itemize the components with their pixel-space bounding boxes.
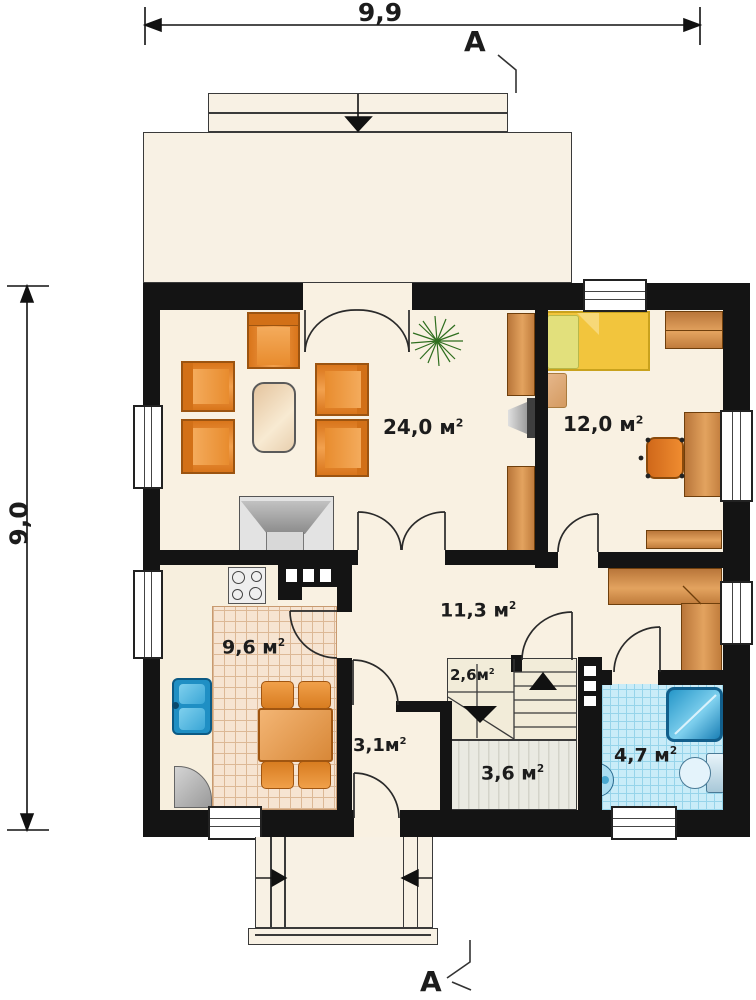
wall (723, 502, 750, 581)
room-label-bathroom: 4,7 м2 (614, 746, 677, 765)
window (133, 405, 163, 489)
wall (143, 489, 160, 570)
dimension-height-label: 9,0 (7, 489, 32, 559)
terrace-door-opening (303, 283, 412, 310)
wall (598, 552, 723, 568)
desk-chair (646, 437, 684, 479)
wall (535, 552, 558, 568)
hall-wardrobe (681, 603, 722, 672)
wall (658, 670, 723, 685)
wall (143, 283, 160, 405)
room-label-pantry: 2,6м2 (450, 667, 495, 683)
section-line-bottom (447, 940, 471, 990)
low-shelf (646, 530, 722, 549)
room-label-hall: 11,3 м2 (440, 601, 516, 620)
stove-icon (228, 567, 266, 604)
wall (723, 283, 750, 410)
hall-wardrobe (608, 568, 722, 605)
pillow (547, 315, 579, 369)
bed (543, 311, 650, 371)
terrace (143, 132, 572, 283)
window (611, 806, 677, 840)
wall (440, 701, 452, 810)
fireplace-icon (239, 496, 334, 554)
dining-chair (261, 761, 294, 789)
entrance-door-opening (354, 810, 400, 837)
wall (677, 810, 750, 837)
section-line-top (498, 55, 516, 93)
window (720, 410, 753, 502)
dimension-width-label: 9,9 (340, 0, 420, 25)
dining-table (258, 708, 333, 762)
wall (143, 810, 208, 837)
window (133, 570, 163, 659)
armchair (181, 361, 235, 412)
dining-chair (298, 681, 331, 709)
wall (337, 658, 352, 810)
terrace-steps (208, 93, 508, 132)
closet-symbol (278, 587, 302, 600)
armchair (315, 419, 369, 477)
porch (255, 837, 433, 928)
toilet-bowl (679, 757, 711, 789)
dimension-top (145, 7, 700, 45)
window (720, 581, 753, 645)
wall (262, 810, 354, 837)
wall (143, 283, 303, 310)
floor-plan: 9,9 9,0 A A 24,0 м2 12,0 м2 11,3 м2 9,6 … (0, 0, 756, 1000)
room-label-bedroom: 12,0 м2 (563, 414, 643, 434)
wall-unit-shelf (507, 313, 535, 396)
coffee-table (252, 382, 296, 453)
wall (412, 283, 585, 310)
porch-step (248, 928, 438, 945)
room-label-living: 24,0 м2 (383, 417, 463, 437)
wall (445, 550, 548, 565)
wall (723, 645, 750, 837)
room-label-vestibule: 3,6 м2 (481, 764, 544, 783)
wall (511, 655, 522, 672)
tv-icon (527, 398, 535, 438)
room-label-kitchen: 9,6 м2 (222, 638, 285, 657)
armchair (315, 363, 369, 416)
shower-icon (666, 687, 723, 742)
wardrobe (665, 311, 723, 349)
wall (535, 310, 548, 552)
dining-chair (261, 681, 294, 709)
room-label-corridor: 3,1м2 (353, 737, 406, 755)
desk (684, 412, 723, 497)
window (208, 806, 262, 840)
section-marker-top: A (464, 28, 486, 56)
armchair (181, 419, 235, 474)
window (583, 279, 647, 312)
dining-chair (298, 761, 331, 789)
sofa (247, 312, 300, 369)
kitchen-sink-icon (172, 678, 212, 735)
wall-unit-shelf (507, 466, 535, 551)
wall (400, 810, 611, 837)
blanket-fold (577, 313, 599, 335)
section-marker-bottom: A (420, 968, 442, 996)
wall (598, 670, 612, 685)
